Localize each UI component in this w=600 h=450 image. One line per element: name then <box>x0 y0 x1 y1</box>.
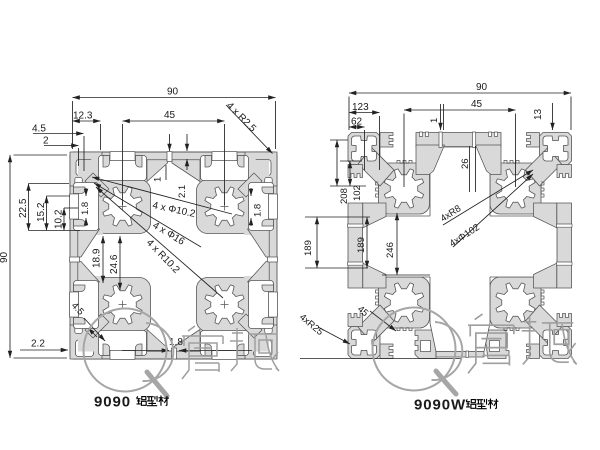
svg-text:1.8: 1.8 <box>80 202 91 215</box>
svg-text:1: 1 <box>429 118 440 123</box>
svg-text:2: 2 <box>43 136 49 147</box>
svg-text:208: 208 <box>339 188 350 204</box>
svg-text:9090: 9090 <box>94 394 131 411</box>
svg-text:15.2: 15.2 <box>36 202 47 222</box>
svg-text:90: 90 <box>476 82 488 93</box>
svg-text:18.9: 18.9 <box>92 248 103 268</box>
svg-text:9090W: 9090W <box>414 397 466 414</box>
svg-text:13: 13 <box>533 108 544 120</box>
svg-text:2.1: 2.1 <box>177 185 188 198</box>
svg-text:90: 90 <box>167 87 179 98</box>
svg-text:1.8: 1.8 <box>253 204 264 217</box>
svg-text:2.2: 2.2 <box>31 339 45 350</box>
svg-text:189: 189 <box>303 240 314 256</box>
svg-text:45: 45 <box>471 99 483 110</box>
svg-text:189: 189 <box>356 237 367 253</box>
svg-text:24.6: 24.6 <box>109 254 120 274</box>
svg-text:90: 90 <box>0 251 10 263</box>
svg-text:102: 102 <box>352 185 363 201</box>
svg-text:45: 45 <box>164 110 176 121</box>
svg-text:26: 26 <box>460 158 471 169</box>
svg-text:4.5: 4.5 <box>32 124 46 135</box>
svg-text:1: 1 <box>153 177 164 182</box>
svg-text:123: 123 <box>352 102 369 113</box>
svg-text:62: 62 <box>351 117 363 128</box>
svg-text:246: 246 <box>385 242 396 258</box>
svg-text:22.5: 22.5 <box>18 198 29 218</box>
svg-text:10.2: 10.2 <box>54 209 65 229</box>
svg-text:12.3: 12.3 <box>73 111 93 122</box>
